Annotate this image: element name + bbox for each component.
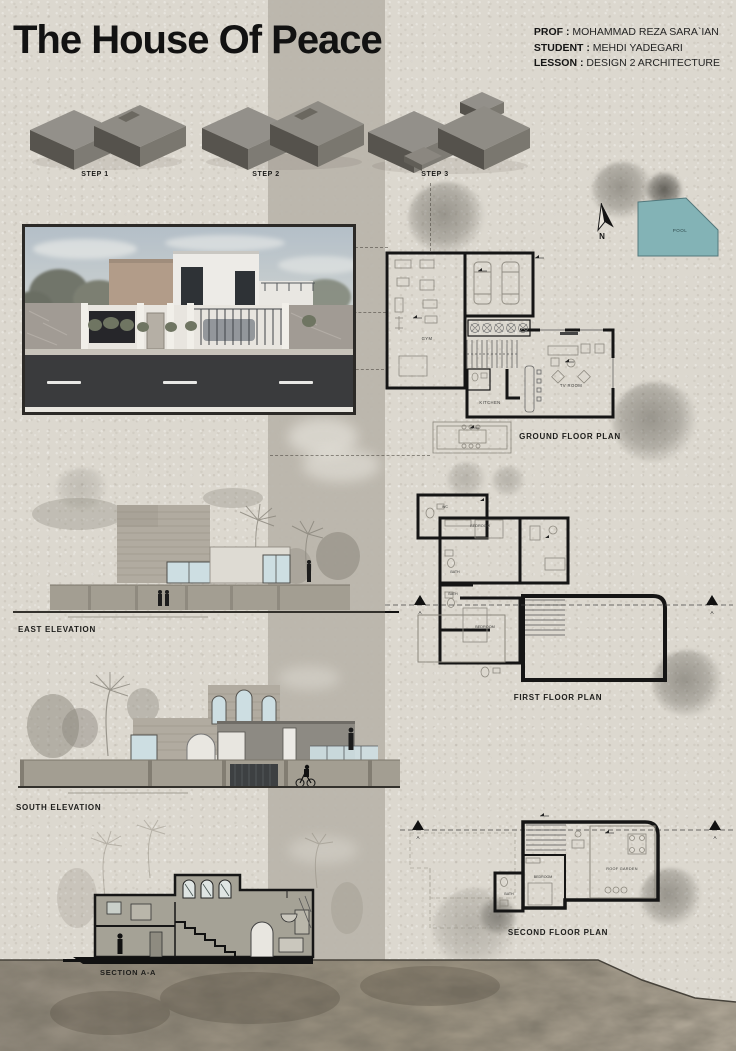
info-row-prof: PROF : MOHAMMAD REZA SARA`IAN xyxy=(534,25,720,41)
living-furniture xyxy=(548,332,604,383)
window xyxy=(218,732,245,760)
window xyxy=(283,728,296,760)
first-floor-plan: BEDROOM BATH BATH BEDROOM WC A A xyxy=(385,468,733,712)
south-elevation-label: SOUTH ELEVATION xyxy=(16,803,101,812)
bath-label: BATH xyxy=(450,570,460,574)
entry-door xyxy=(147,313,164,349)
student-label: STUDENT : xyxy=(534,42,590,54)
bedroom-label: BEDROOM xyxy=(475,625,495,629)
project-info: PROF : MOHAMMAD REZA SARA`IAN STUDENT : … xyxy=(534,25,720,72)
second-floor-plan: A A BEDROOM BATH ROOF GARDEN xyxy=(400,778,736,950)
planter xyxy=(471,324,528,333)
kitchen-label: KITCHEN xyxy=(479,400,500,405)
step2-label: STEP 2 xyxy=(231,171,301,178)
pool-label: POOL xyxy=(673,228,688,233)
prof-label: PROF : xyxy=(534,26,570,38)
step3-label: STEP 3 xyxy=(400,171,470,178)
section-marker: A xyxy=(710,610,713,615)
arched-door xyxy=(187,734,215,760)
clerestory-windows xyxy=(183,880,231,898)
garage-cars xyxy=(474,262,519,304)
section-label: SECTION A-A xyxy=(100,968,156,977)
section-marker: A xyxy=(713,835,716,840)
gym-label: GYM xyxy=(422,336,433,341)
bath-label: BATH xyxy=(448,592,458,596)
ghost-outline xyxy=(410,833,520,928)
ground-floor-plan: GYM xyxy=(375,238,695,456)
wc-label: WC xyxy=(442,505,448,509)
massing-step1-diagram xyxy=(22,92,187,172)
section-base xyxy=(73,957,313,964)
lesson-label: LESSON : xyxy=(534,57,584,69)
terrace-thin xyxy=(418,615,505,662)
stairs xyxy=(526,825,566,850)
tv-room-label: TV ROOM xyxy=(560,383,582,388)
gate xyxy=(230,764,278,787)
north-arrow-icon: N xyxy=(588,200,620,242)
bedroom-label: BEDROOM xyxy=(470,524,490,528)
bath-label: BATH xyxy=(504,892,514,896)
section-marker: A xyxy=(416,835,419,840)
section-drawing xyxy=(55,818,365,970)
massing-step2-diagram xyxy=(196,88,366,172)
stairs xyxy=(467,340,517,368)
window xyxy=(263,555,290,583)
plan-walls xyxy=(387,253,613,417)
student-value: MEHDI YADEGARI xyxy=(593,42,683,54)
street-render xyxy=(25,227,353,407)
massing-step3-diagram xyxy=(362,86,532,176)
terrace-outline xyxy=(523,596,665,680)
stone-wall-right xyxy=(285,305,353,349)
stone-wall-left xyxy=(25,303,85,349)
band-cloud xyxy=(302,448,380,482)
second-floor-plan-label: SECOND FLOOR PLAN xyxy=(478,928,638,937)
info-row-student: STUDENT : MEHDI YADEGARI xyxy=(534,41,720,57)
arch-door xyxy=(251,922,273,957)
door xyxy=(150,932,162,957)
lesson-value: DESIGN 2 ARCHITECTURE xyxy=(586,57,720,69)
kitchen-island xyxy=(525,366,541,412)
window xyxy=(131,735,157,760)
balcony-person xyxy=(349,728,354,750)
first-floor-plan-label: FIRST FLOOR PLAN xyxy=(478,693,638,702)
boundary-wall xyxy=(20,760,400,787)
window xyxy=(107,902,121,914)
section-marker: A xyxy=(418,610,421,615)
ground-floor-plan-label: GROUND FLOOR PLAN xyxy=(490,432,650,441)
prof-value: MOHAMMAD REZA SARA`IAN xyxy=(572,26,718,38)
south-elevation xyxy=(8,664,408,822)
person-silhouette xyxy=(117,933,122,954)
sidewalk xyxy=(25,349,353,355)
page-title: The House Of Peace xyxy=(13,18,382,63)
bedroom-label: BEDROOM xyxy=(534,875,553,879)
boundary-wall xyxy=(50,585,350,610)
east-elevation xyxy=(8,486,398,644)
info-row-lesson: LESSON : DESIGN 2 ARCHITECTURE xyxy=(534,56,720,72)
presentation-board: The House Of Peace PROF : MOHAMMAD REZA … xyxy=(0,0,736,1051)
roof-garden-label: ROOF GARDEN xyxy=(606,867,638,871)
step1-label: STEP 1 xyxy=(60,171,130,178)
render-image-frame xyxy=(22,224,356,415)
east-elevation-label: EAST ELEVATION xyxy=(18,625,96,634)
fixtures xyxy=(426,504,565,677)
